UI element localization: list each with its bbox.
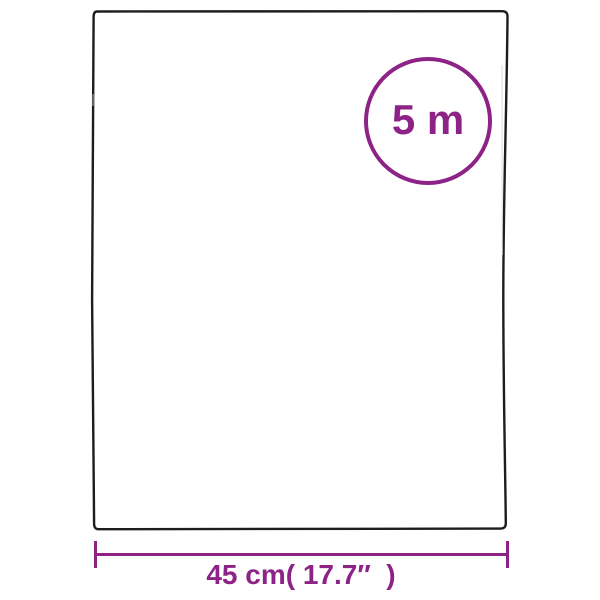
width-dimension-label: 45 cm( 17.7″ ) <box>0 560 600 590</box>
roll-length-badge: 5 m <box>364 57 492 185</box>
dimension-line <box>95 553 508 556</box>
roll-length-label: 5 m <box>392 99 464 141</box>
film-sheet-outline <box>0 0 600 600</box>
product-dimension-diagram: 5 m 45 cm( 17.7″ ) <box>0 0 600 600</box>
